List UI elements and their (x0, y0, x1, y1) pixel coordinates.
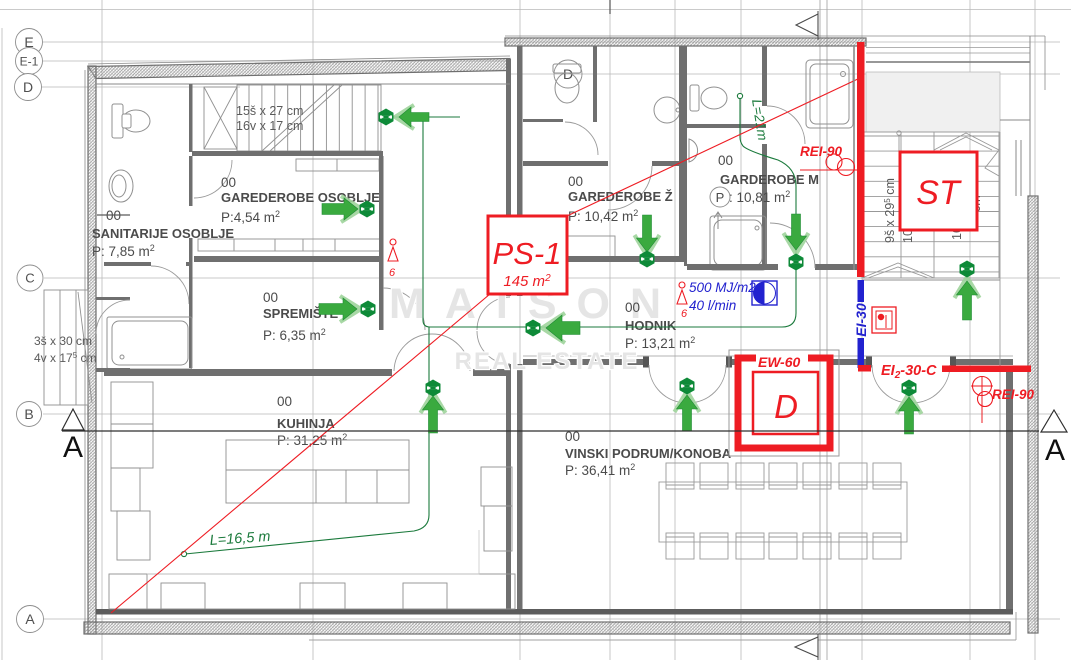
svg-text:E-1: E-1 (20, 54, 39, 68)
svg-text:40 l/min: 40 l/min (689, 298, 736, 313)
svg-text:KUHINJA: KUHINJA (277, 416, 335, 431)
svg-text:REI-90: REI-90 (800, 144, 843, 159)
svg-text:C: C (25, 271, 34, 286)
svg-text:A: A (25, 611, 35, 627)
svg-text:00: 00 (718, 153, 733, 168)
svg-text:4v x 175 cm: 4v x 175 cm (34, 351, 97, 365)
svg-text:: 10,81 m2: : 10,81 m2 (729, 189, 790, 205)
svg-text:P: 36,41 m2: P: 36,41 m2 (565, 462, 635, 478)
svg-text:6: 6 (681, 308, 688, 320)
svg-text:00: 00 (221, 175, 236, 190)
svg-text:GARDEROBE M: GARDEROBE M (720, 172, 819, 187)
svg-text:P:4,54 m2: P:4,54 m2 (221, 209, 280, 225)
svg-text:B: B (24, 406, 33, 422)
svg-text:GAREDEROBE OSOBLJE: GAREDEROBE OSOBLJE (221, 190, 380, 205)
svg-text:P: 7,85 m2: P: 7,85 m2 (92, 243, 155, 259)
svg-text:ST: ST (916, 174, 962, 212)
svg-text:145 m2: 145 m2 (503, 273, 551, 290)
svg-text:15š x 27 cm: 15š x 27 cm (236, 104, 303, 118)
svg-text:VINSKI PODRUM/KONOBA: VINSKI PODRUM/KONOBA (565, 446, 732, 461)
svg-text:00: 00 (263, 290, 278, 305)
svg-text:HODNIK: HODNIK (625, 318, 677, 333)
svg-text:P: 13,21 m2: P: 13,21 m2 (625, 335, 695, 351)
svg-text:3š x 30 cm: 3š x 30 cm (34, 334, 92, 348)
svg-text:EI-30: EI-30 (853, 303, 869, 337)
svg-text:P: P (716, 190, 725, 205)
svg-text:A: A (63, 431, 83, 464)
svg-text:9š x 295 cm: 9š x 295 cm (883, 178, 897, 243)
svg-text:00: 00 (568, 174, 583, 189)
svg-text:D: D (23, 79, 33, 95)
svg-text:PS-1: PS-1 (493, 236, 562, 271)
svg-text:A: A (1045, 434, 1065, 467)
svg-text:00: 00 (625, 300, 640, 315)
svg-text:EI2-30-C: EI2-30-C (881, 363, 937, 381)
svg-text:500 MJ/m2: 500 MJ/m2 (689, 280, 756, 295)
svg-text:REAL ESTATE: REAL ESTATE (455, 348, 640, 375)
svg-text:00: 00 (277, 394, 292, 409)
svg-text:P: 6,35 m2: P: 6,35 m2 (263, 327, 326, 343)
svg-text:EW-60: EW-60 (758, 354, 800, 370)
svg-text:REI-90: REI-90 (992, 387, 1035, 402)
svg-text:D: D (774, 388, 798, 425)
svg-text:6: 6 (389, 267, 396, 279)
svg-text:16v x 17 cm: 16v x 17 cm (236, 119, 303, 133)
